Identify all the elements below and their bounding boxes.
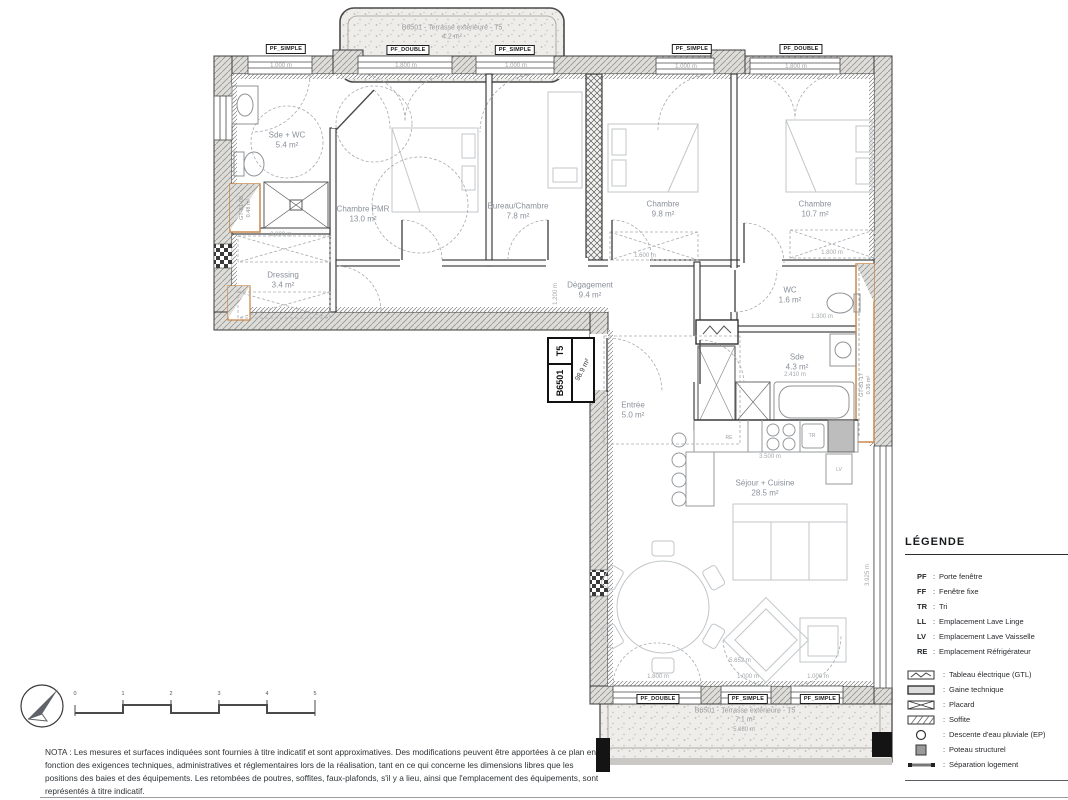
shaft-label: GT-B1-080.48 m² xyxy=(239,196,253,220)
dimension: 1.000 m xyxy=(737,674,759,680)
legend-symbol-row: :Poteau structurel xyxy=(905,742,1068,757)
legend-abbr-row: FF:Fenêtre fixe xyxy=(905,584,1068,599)
room-label-wc: WC1.6 m² xyxy=(779,286,802,307)
room-label-chambre-2: Chambre10.7 m² xyxy=(799,200,832,221)
window-tag: PF_SIMPLE xyxy=(495,45,535,55)
legend-symbol-row: :Descente d'eau pluviale (EP) xyxy=(905,727,1068,742)
legend-title: LÉGENDE xyxy=(905,536,1068,548)
unit-id-box: T5 B6501 98.9 m² xyxy=(547,337,595,403)
legend-abbr-row: RE:Emplacement Réfrigérateur xyxy=(905,644,1068,659)
dimension: 1.800 m xyxy=(785,64,807,70)
dimension: 1.800 m xyxy=(821,250,843,256)
unit-code: B6501 xyxy=(555,370,565,397)
dimension: 5.080 m xyxy=(733,727,755,733)
room-label-entree: Entrée5.0 m² xyxy=(621,401,645,422)
dimension: 1.300 m xyxy=(811,314,833,320)
dimension: 2.410 m xyxy=(784,372,806,378)
door-leaves xyxy=(336,90,744,392)
dimension: 1.800 m xyxy=(647,674,669,680)
structural-post-icon xyxy=(905,744,939,756)
sanitary-fixtures xyxy=(232,86,860,422)
scale-bar xyxy=(75,700,315,716)
room-label-degagement: Dégagement9.4 m² xyxy=(567,281,613,302)
window-tag: PF_SIMPLE xyxy=(800,694,840,704)
terrace-top-label: B6501 - Terrasse extérieure - T54.2 m² xyxy=(402,24,503,43)
unit-separation-icon xyxy=(905,759,939,771)
room-label-chambre-pmr: Chambre PMR13.0 m² xyxy=(337,205,390,226)
dimension: 1.000 m xyxy=(270,63,292,69)
dimension: 1.000 m xyxy=(675,64,697,70)
electrical-panel-icon xyxy=(905,669,939,681)
window-tag: PF_SIMPLE xyxy=(672,44,712,54)
living-furniture xyxy=(600,504,847,682)
furniture xyxy=(392,92,872,212)
scale-tick: 0 xyxy=(73,691,76,697)
dimension: 1.800 m xyxy=(395,63,417,69)
fridge-tag: RE xyxy=(726,435,733,441)
dimension: 1.000 m xyxy=(505,63,527,69)
scale-tick: 5 xyxy=(313,691,316,697)
scale-tick: 2 xyxy=(169,691,172,697)
room-label-chambre-1: Chambre9.8 m² xyxy=(647,200,680,221)
room-label-bureau-chambre: Bureau/Chambre7.8 m² xyxy=(488,202,549,223)
floorplan-sheet: Sde + WC5.4 m² Chambre PMR13.0 m² Bureau… xyxy=(0,0,1068,800)
legend-bottom-divider xyxy=(905,780,1068,781)
sheet-footer-line xyxy=(40,797,1068,798)
legend-symbol-row: :Séparation logement xyxy=(905,757,1068,772)
legend-symbol-row: :Placard xyxy=(905,697,1068,712)
rainwater-downpipe-icon xyxy=(905,729,939,741)
room-label-sejour-cuisine: Séjour + Cuisine28.5 m² xyxy=(736,479,795,500)
dimension: 1.200 m xyxy=(553,283,559,305)
nota-text: NOTA : Les mesures et surfaces indiquées… xyxy=(45,746,603,797)
dimension: 1.600 m xyxy=(634,253,656,259)
dimension: 5.652 m xyxy=(729,658,751,664)
dimension: 2.000 m xyxy=(270,232,292,238)
dimension: 1.000 m xyxy=(807,674,829,680)
window-tag: PF_DOUBLE xyxy=(636,694,679,704)
legend-symbol-row: :Soffite xyxy=(905,712,1068,727)
window-tag: PF_DOUBLE xyxy=(386,45,429,55)
waste-sorting-tag: TR xyxy=(809,433,816,439)
legend-panel: LÉGENDE PF:Porte fenêtre FF:Fenêtre fixe… xyxy=(905,536,1068,781)
soffit-icon xyxy=(905,714,939,726)
legend-abbr-row: LV:Emplacement Lave Vaisselle xyxy=(905,629,1068,644)
room-label-sde: Sde4.3 m² xyxy=(786,353,809,374)
legend-symbol-row: :Tableau électrique (GTL) xyxy=(905,667,1068,682)
legend-abbr-row: PF:Porte fenêtre xyxy=(905,569,1068,584)
window-tag: PF_DOUBLE xyxy=(779,44,822,54)
room-label-dressing: Dressing3.4 m² xyxy=(267,271,299,292)
legend-abbr-row: TR:Tri xyxy=(905,599,1068,614)
dishwasher-tag: LV xyxy=(836,467,842,473)
shaft-label: GT-B1-170.36 m² xyxy=(859,373,873,397)
scale-tick: 3 xyxy=(217,691,220,697)
unit-area: 98.9 m² xyxy=(574,358,591,382)
dimension: 3.925 m xyxy=(865,564,871,586)
separation-markers xyxy=(214,244,608,596)
dimension: 3.500 m xyxy=(759,454,781,460)
terrace-bottom-label: B6501 - Terrasse extérieure - T57.1 m² xyxy=(695,707,796,726)
legend-divider xyxy=(905,554,1068,555)
closet-icon xyxy=(905,699,939,711)
legend-abbr-row: LL:Emplacement Lave Linge xyxy=(905,614,1068,629)
room-label-sde-wc: Sde + WC5.4 m² xyxy=(269,131,306,152)
scale-tick: 1 xyxy=(121,691,124,697)
unit-type: T5 xyxy=(555,346,565,357)
window-tag: PF_SIMPLE xyxy=(266,44,306,54)
scale-tick: 4 xyxy=(265,691,268,697)
technical-shaft-icon xyxy=(905,684,939,696)
compass-icon xyxy=(21,685,63,727)
window-tag: PF_SIMPLE xyxy=(728,694,768,704)
legend-symbol-row: :Gaine technique xyxy=(905,682,1068,697)
